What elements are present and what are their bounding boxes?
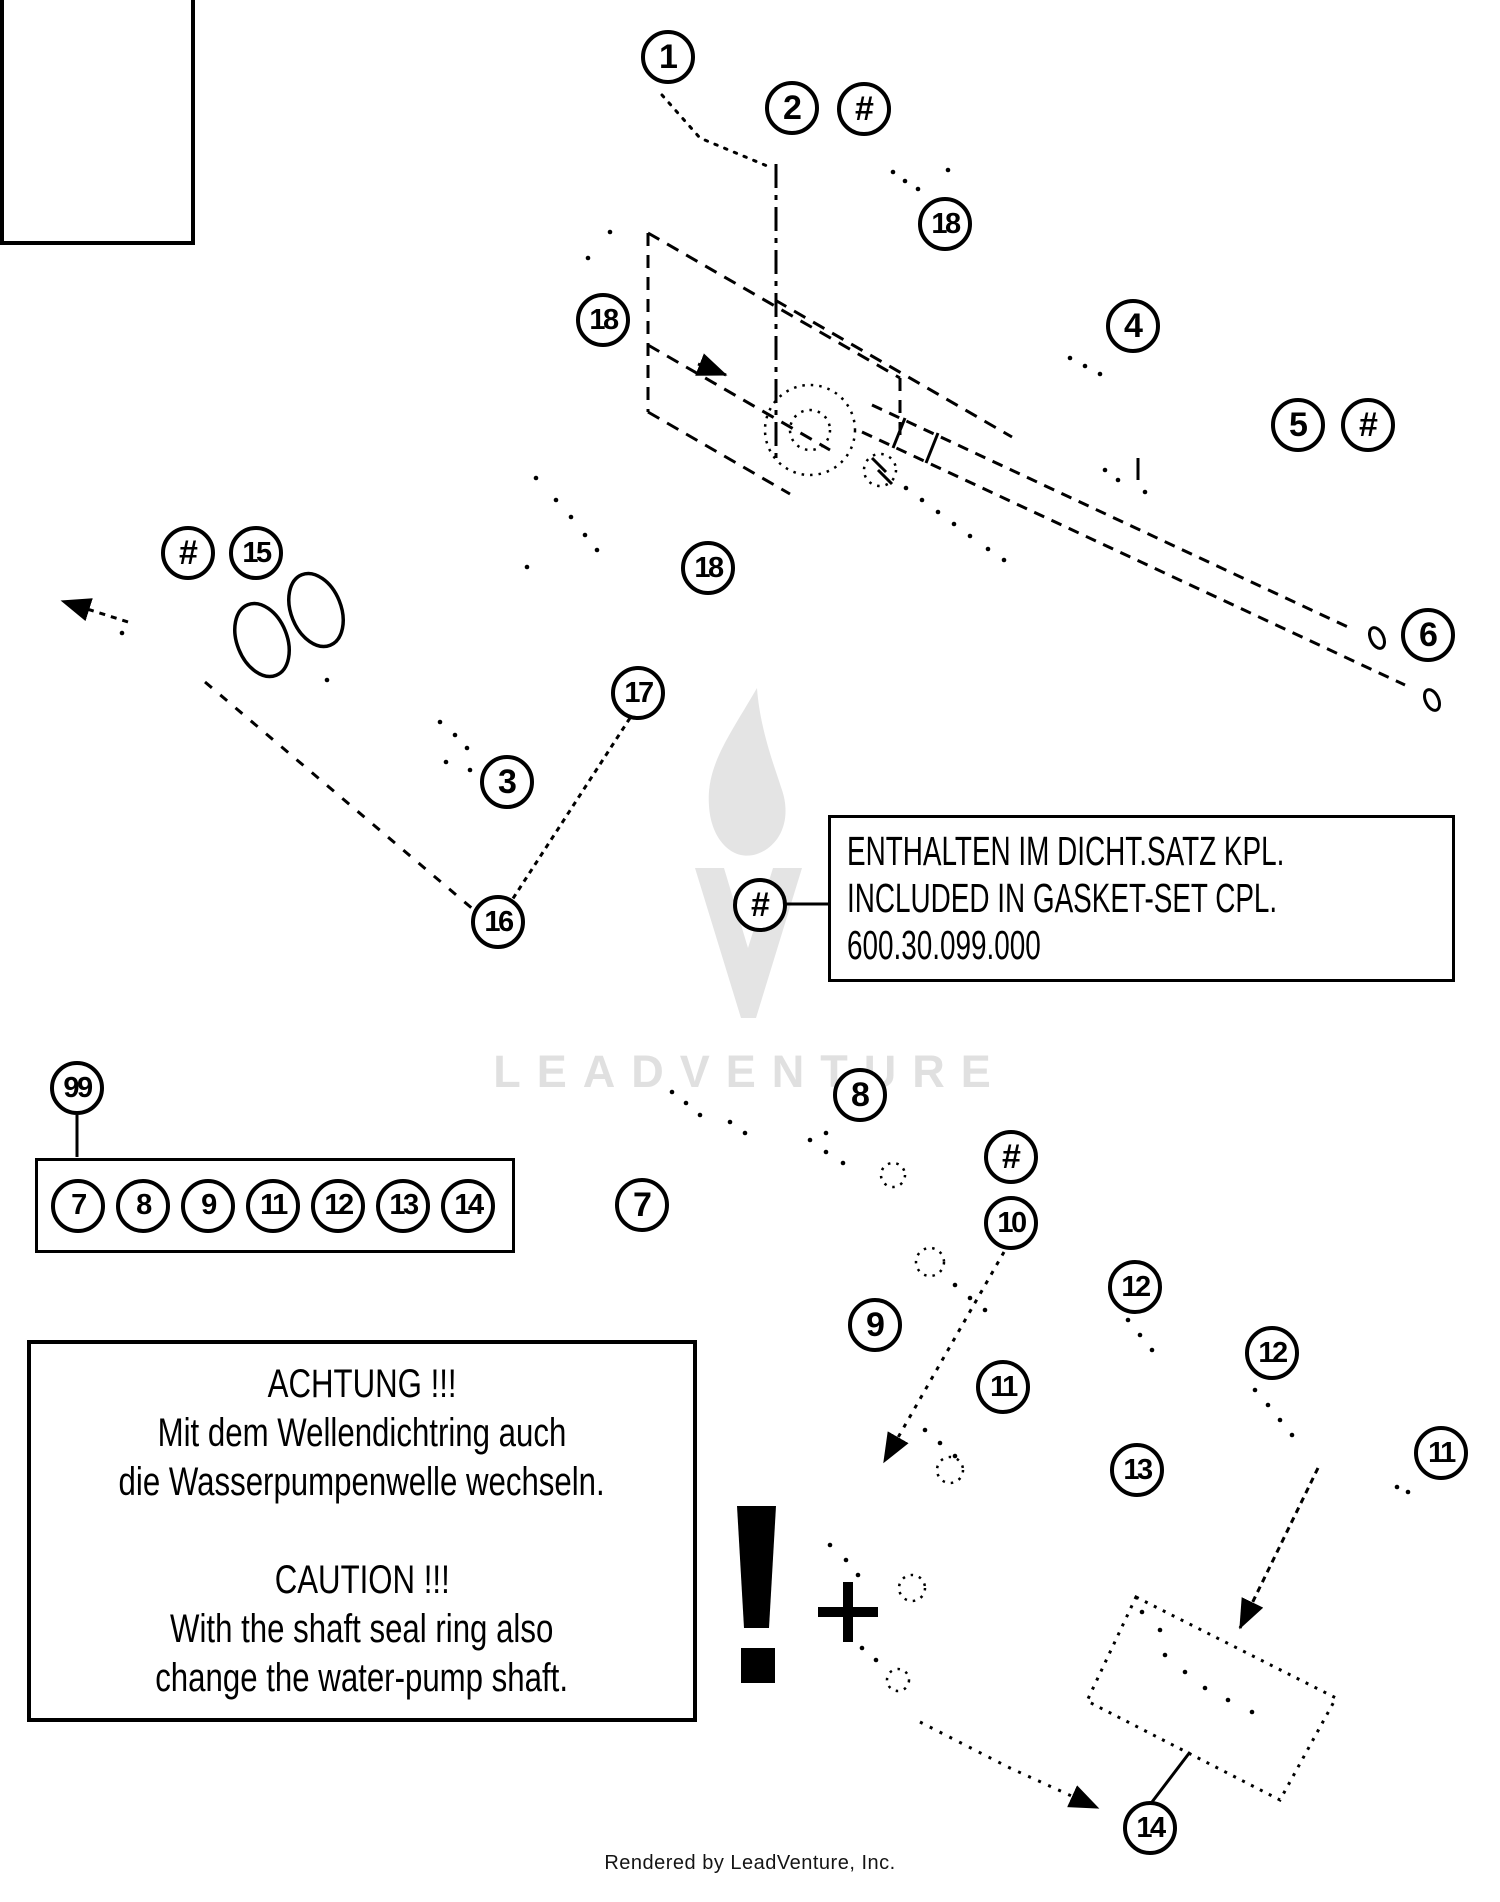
warning-line: ACHTUNG !!!	[31, 1360, 693, 1409]
legend-callout-13: 13	[376, 1179, 430, 1233]
part-callout-18: 18	[681, 541, 735, 595]
legend-callout-11: 11	[246, 1179, 300, 1233]
legend-callout-8: 8	[116, 1179, 170, 1233]
note-line: INCLUDED IN GASKET-SET CPL.	[847, 875, 1452, 922]
plus-icon	[818, 1582, 878, 1642]
part-callout-#: #	[984, 1130, 1038, 1184]
warning-box: ACHTUNG !!!Mit dem Wellendichtring auchd…	[27, 1340, 697, 1722]
part-callout-5: 5	[1271, 398, 1325, 452]
part-callout-6: 6	[1401, 608, 1455, 662]
warning-line: CAUTION !!!	[31, 1556, 693, 1605]
group-99-legend-box: 78911121314	[35, 1158, 515, 1253]
legend-callout-14: 14	[441, 1179, 495, 1233]
seal-plate-rectangle	[1087, 1597, 1336, 1800]
note-line: ENTHALTEN IM DICHT.SATZ KPL.	[847, 828, 1452, 875]
cover-arrow-icon	[698, 364, 726, 375]
part-callout-9: 9	[848, 1298, 902, 1352]
note-line: 600.30.099.000	[847, 922, 1452, 969]
warning-lines: ACHTUNG !!!Mit dem Wellendichtring auchd…	[31, 1360, 693, 1703]
part-callout-15: 15	[229, 526, 283, 580]
warning-line	[31, 1507, 693, 1556]
impeller-circles	[765, 385, 896, 486]
shaft-lines	[862, 405, 1405, 685]
legend-callout-9: 9	[181, 1179, 235, 1233]
leadventure-flame-watermark	[695, 688, 802, 1018]
pump-cover-outline	[648, 233, 1012, 494]
part-callout-18: 18	[576, 293, 630, 347]
part-callout-17: 17	[611, 666, 665, 720]
warning-line: die Wasserpumpenwelle wechseln.	[31, 1458, 693, 1507]
part-callout-1: 1	[641, 30, 695, 84]
part-callout-13: 13	[1110, 1443, 1164, 1497]
part-callout-2: 2	[765, 81, 819, 135]
part-callout-4: 4	[1106, 299, 1160, 353]
warning-line: Mit dem Wellendichtring auch	[31, 1409, 693, 1458]
part-callout-10: 10	[984, 1196, 1038, 1250]
part-callout-#: #	[837, 82, 891, 136]
warning-line: change the water-pump shaft.	[31, 1654, 693, 1703]
left-pointer-arrow	[62, 601, 128, 622]
shaft-ticks	[872, 418, 1138, 484]
part-callout-#: #	[161, 526, 215, 580]
part-callout-#: #	[1341, 398, 1395, 452]
part-callout-12: 12	[1108, 1260, 1162, 1314]
legend-callout-row: 78911121314	[51, 1179, 495, 1233]
rendered-by-footer: Rendered by LeadVenture, Inc.	[0, 1852, 1500, 1875]
legend-callout-12: 12	[311, 1179, 365, 1233]
part-callout-16: 16	[471, 895, 525, 949]
part-callout-14: 14	[1123, 1801, 1177, 1855]
part-callout-#: #	[733, 878, 787, 932]
small-part-circles	[881, 1163, 963, 1691]
parts-diagram-page: LEADVENTURE ENTHALTEN IM DICHT.SATZ KPL.…	[0, 0, 1500, 1902]
gasket-set-note-box: ENTHALTEN IM DICHT.SATZ KPL.INCLUDED IN …	[828, 815, 1455, 982]
o-rings	[225, 565, 354, 684]
part-callout-11: 11	[1414, 1426, 1468, 1480]
legend-callout-7: 7	[51, 1179, 105, 1233]
part-callout-3: 3	[480, 755, 534, 809]
warning-line: With the shaft seal ring also	[31, 1605, 693, 1654]
part-callout-7: 7	[615, 1178, 669, 1232]
part-callout-18: 18	[918, 197, 972, 251]
part-callout-99: 99	[50, 1061, 104, 1115]
part-callout-11: 11	[976, 1360, 1030, 1414]
part-callout-8: 8	[833, 1068, 887, 1122]
gasket-set-note-lines: ENTHALTEN IM DICHT.SATZ KPL.INCLUDED IN …	[847, 828, 1452, 969]
exclamation-icon	[737, 1506, 776, 1683]
part-callout-12: 12	[1245, 1326, 1299, 1380]
